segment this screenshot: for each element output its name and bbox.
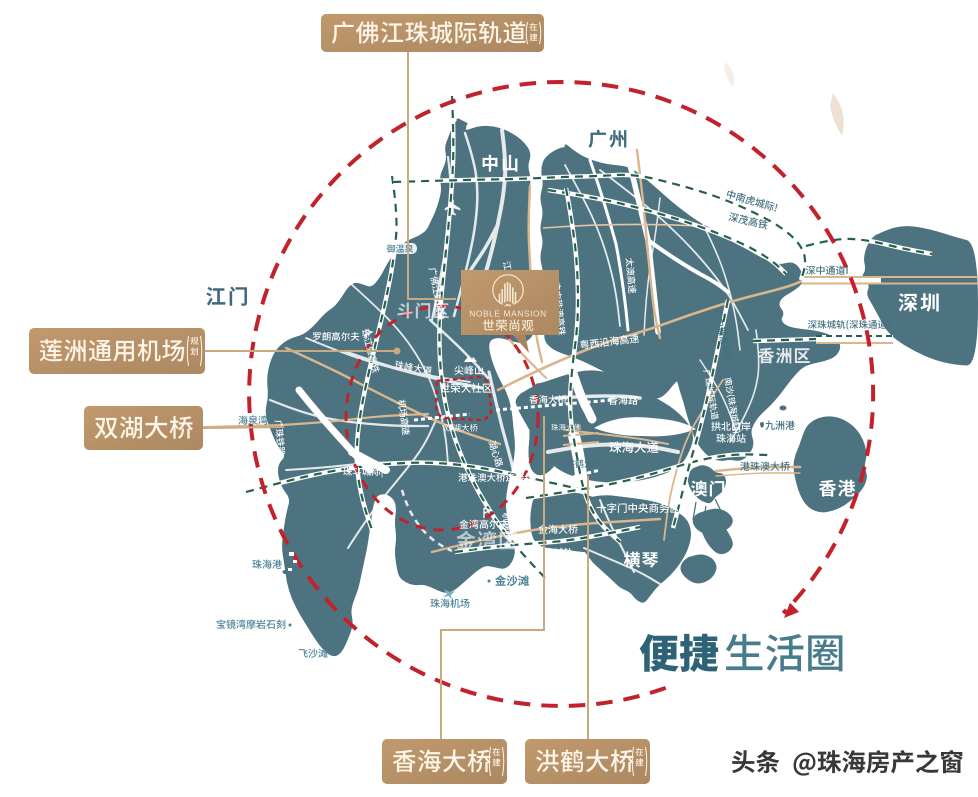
svg-text:NOBLE MANSION: NOBLE MANSION (469, 309, 547, 319)
